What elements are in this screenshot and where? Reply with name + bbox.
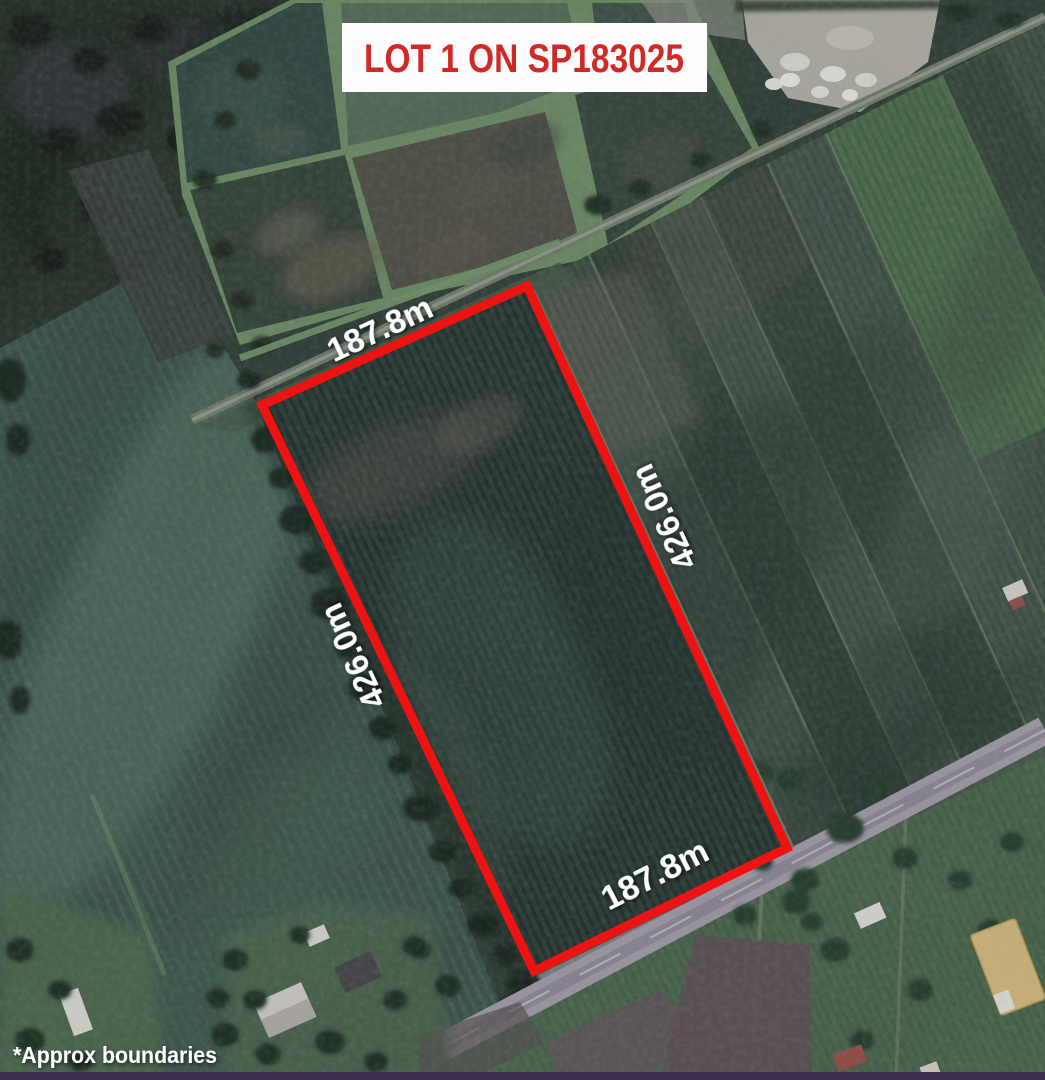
svg-text:*Approx boundaries: *Approx boundaries (13, 1042, 217, 1068)
svg-text:LOT 1 ON SP183025: LOT 1 ON SP183025 (364, 37, 684, 81)
